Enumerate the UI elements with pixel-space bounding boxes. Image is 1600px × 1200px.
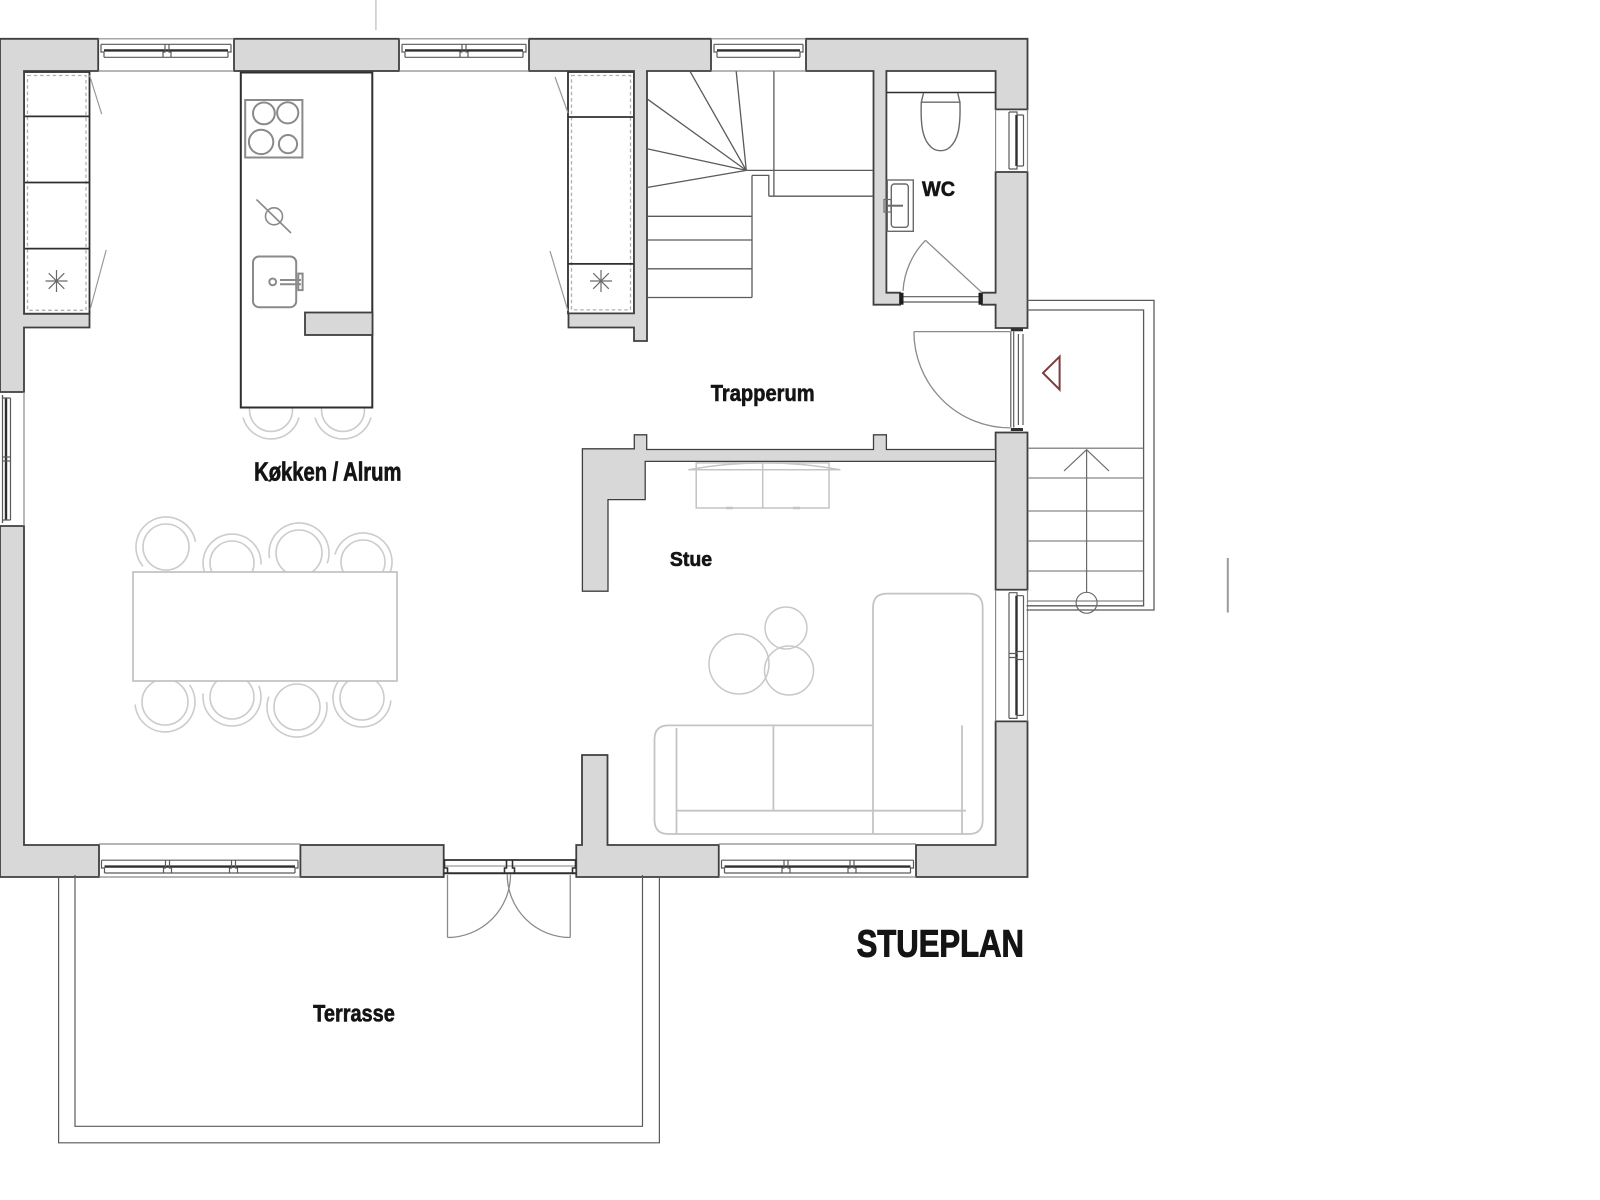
svg-text:Trapperum: Trapperum bbox=[711, 380, 815, 406]
svg-text:Køkken / Alrum: Køkken / Alrum bbox=[254, 456, 401, 486]
svg-text:WC: WC bbox=[922, 177, 955, 201]
svg-text:Terrasse: Terrasse bbox=[313, 1001, 395, 1028]
svg-text:Stue: Stue bbox=[670, 548, 712, 571]
svg-text:STUEPLAN: STUEPLAN bbox=[857, 924, 1024, 966]
